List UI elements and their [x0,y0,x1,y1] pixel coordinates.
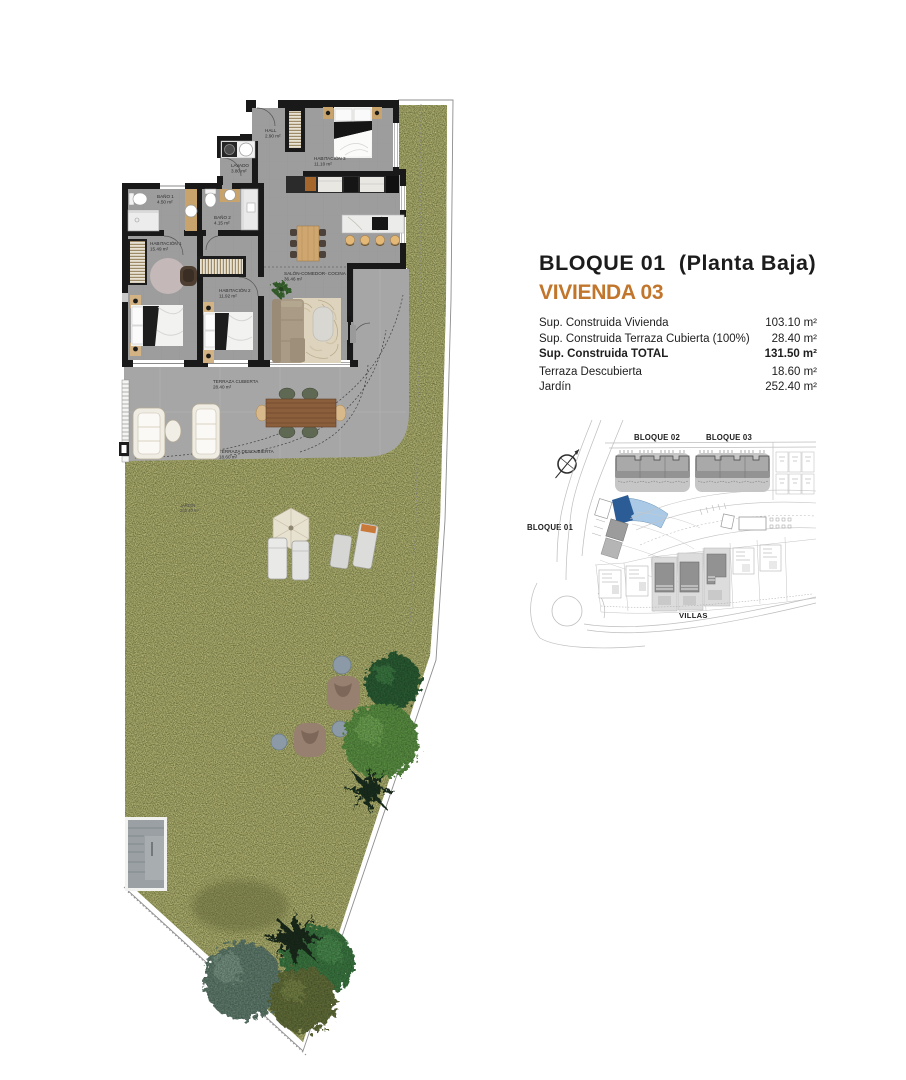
svg-text:4.50 m²: 4.50 m² [157,200,173,205]
svg-text:SALÓN-COMEDOR- COCINA: SALÓN-COMEDOR- COCINA [284,270,347,276]
svg-text:36.46 m²: 36.46 m² [284,277,303,282]
svg-text:15.49 m²: 15.49 m² [150,247,169,252]
svg-text:HABITACIÓN 3: HABITACIÓN 3 [314,155,346,161]
svg-text:11.10 m²: 11.10 m² [314,162,332,167]
svg-text:HABITACIÓN 1: HABITACIÓN 1 [150,240,182,246]
svg-text:2.90 m²: 2.90 m² [265,134,281,139]
svg-text:252.40 m²: 252.40 m² [180,508,199,513]
svg-text:3.80 m²: 3.80 m² [231,169,247,174]
svg-text:28.40 m²: 28.40 m² [213,385,232,390]
svg-text:4.15 m²: 4.15 m² [214,221,230,226]
svg-text:LAVADO: LAVADO [231,163,249,168]
svg-text:TERRAZA CUBIERTA: TERRAZA CUBIERTA [213,379,259,384]
svg-text:HABITACIÓN 2: HABITACIÓN 2 [219,287,251,293]
svg-text:HALL: HALL [265,128,277,133]
svg-text:BAÑO 2: BAÑO 2 [214,214,231,220]
svg-text:BLOQUE 02: BLOQUE 02 [634,433,680,442]
svg-text:11.92 m²: 11.92 m² [219,294,237,299]
svg-text:TERRAZA DESCUBIERTA: TERRAZA DESCUBIERTA [219,449,275,454]
svg-text:18.60 m²: 18.60 m² [219,455,238,460]
svg-text:BLOQUE 03: BLOQUE 03 [706,433,752,442]
svg-text:BLOQUE 01: BLOQUE 01 [527,523,573,532]
svg-text:BAÑO 1: BAÑO 1 [157,193,174,199]
svg-text:VILLAS: VILLAS [679,611,708,620]
